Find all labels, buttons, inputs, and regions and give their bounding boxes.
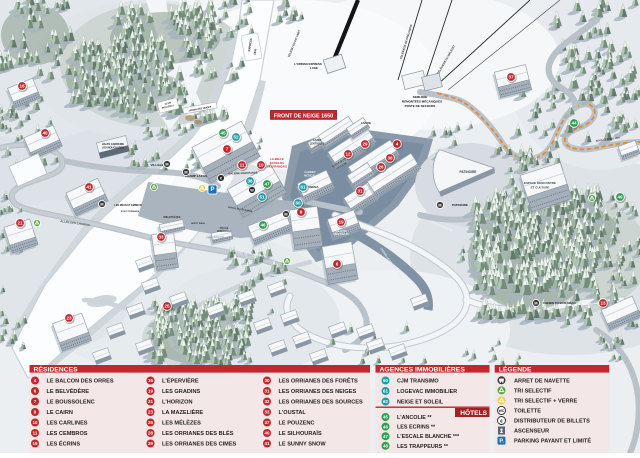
svg-text:AGENCES IMMOBILIÈRES: AGENCES IMMOBILIÈRES xyxy=(380,364,466,373)
svg-text:21: 21 xyxy=(17,221,23,226)
svg-text:7: 7 xyxy=(226,147,229,152)
svg-text:32: 32 xyxy=(265,399,270,404)
svg-text:LES ORRIANES DES BLÉS: LES ORRIANES DES BLÉS xyxy=(162,429,234,437)
svg-text:W: W xyxy=(250,189,254,193)
svg-text:29: 29 xyxy=(362,142,368,147)
svg-text:47: 47 xyxy=(383,434,388,439)
svg-text:L'ANCOLIE **: L'ANCOLIE ** xyxy=(397,415,432,421)
svg-text:19: 19 xyxy=(148,389,153,394)
svg-text:36: 36 xyxy=(247,179,253,184)
svg-text:PATINOIRE: PATINOIRE xyxy=(460,170,477,174)
svg-text:SEMLORE: SEMLORE xyxy=(413,95,428,99)
svg-text:62: 62 xyxy=(383,399,388,404)
svg-text:CENTRALES: CENTRALES xyxy=(310,142,325,145)
svg-text:SPECTACLES: SPECTACLES xyxy=(333,233,349,236)
svg-text:PONT ORRIANES: PONT ORRIANES xyxy=(121,210,140,213)
svg-text:LES MOUCHARDS: LES MOUCHARDS xyxy=(102,146,124,149)
svg-text:44: 44 xyxy=(571,121,577,126)
svg-text:LES ORRIANES DES FORÊTS: LES ORRIANES DES FORÊTS xyxy=(279,377,359,385)
svg-text:ASCENSEUR: ASCENSEUR xyxy=(514,429,549,435)
svg-text:LE BOUSSOLENC: LE BOUSSOLENC xyxy=(47,400,95,406)
svg-text:POLICE: POLICE xyxy=(220,228,229,230)
svg-text:DÉPÔT ÉARL: DÉPÔT ÉARL xyxy=(191,222,206,225)
svg-text:NEIGE ET SOLEIL: NEIGE ET SOLEIL xyxy=(397,400,444,406)
svg-text:30: 30 xyxy=(265,378,270,383)
svg-text:9: 9 xyxy=(300,210,303,215)
svg-text:POSTE DE SECOURS: POSTE DE SECOURS xyxy=(405,104,436,108)
svg-text:ESPACE RENCONTRE: ESPACE RENCONTRE xyxy=(524,181,556,185)
svg-text:23: 23 xyxy=(66,316,72,321)
svg-text:16: 16 xyxy=(19,84,25,89)
svg-text:L'ÉPERVIÈRE: L'ÉPERVIÈRE xyxy=(162,377,199,385)
svg-text:L'HORIZON: L'HORIZON xyxy=(162,400,193,406)
svg-text:€: € xyxy=(500,418,503,424)
svg-text:P.: P. xyxy=(499,439,504,445)
svg-text:LE SILHOURAÏS: LE SILHOURAÏS xyxy=(279,430,322,437)
svg-text:60: 60 xyxy=(295,201,301,206)
svg-text:LES MÉLÈZES: LES MÉLÈZES xyxy=(162,419,201,427)
svg-text:23: 23 xyxy=(148,410,153,415)
svg-text:SKI FRANÇAIS: SKI FRANÇAIS xyxy=(267,165,287,169)
svg-text:L'OUSTAL: L'OUSTAL xyxy=(279,410,307,416)
svg-text:16: 16 xyxy=(148,378,153,383)
svg-text:M: M xyxy=(100,203,103,207)
svg-text:29: 29 xyxy=(148,441,153,446)
svg-text:40: 40 xyxy=(42,131,48,136)
svg-text:37: 37 xyxy=(265,420,270,425)
svg-text:25: 25 xyxy=(148,420,153,425)
svg-text:49: 49 xyxy=(617,195,623,200)
svg-text:33: 33 xyxy=(265,410,270,415)
svg-text:LES ORRIANES DES SOURCES: LES ORRIANES DES SOURCES xyxy=(279,400,364,406)
svg-text:46: 46 xyxy=(260,223,266,228)
svg-text:LES CARLINES: LES CARLINES xyxy=(47,421,88,427)
svg-text:26: 26 xyxy=(378,165,384,170)
svg-text:BIBLIOTHÈQUE: BIBLIOTHÈQUE xyxy=(163,216,181,219)
svg-text:CJM TRANSIMO: CJM TRANSIMO xyxy=(397,379,439,385)
svg-text:45: 45 xyxy=(383,415,388,420)
svg-text:TRI SELECTIF + VERRE: TRI SELECTIF + VERRE xyxy=(514,398,578,404)
svg-text:37: 37 xyxy=(508,75,514,80)
svg-text:19: 19 xyxy=(338,220,344,225)
svg-text:LES CEMBROS: LES CEMBROS xyxy=(47,431,88,437)
svg-text:LE POUZENC: LE POUZENC xyxy=(279,421,315,427)
svg-text:13: 13 xyxy=(600,301,606,306)
svg-text:31: 31 xyxy=(357,189,363,194)
svg-text:LES GRADINS: LES GRADINS xyxy=(162,389,200,395)
svg-text:PATINOIRE: PATINOIRE xyxy=(452,203,468,207)
svg-text:LA MAZELIÈRE: LA MAZELIÈRE xyxy=(162,408,203,416)
svg-text:LES ORRIANES DES NEIGES: LES ORRIANES DES NEIGES xyxy=(279,389,357,395)
svg-text:ET CULTURE: ET CULTURE xyxy=(531,186,550,190)
svg-text:40: 40 xyxy=(265,431,270,436)
svg-text:M: M xyxy=(184,171,187,175)
svg-text:CINÉMA: CINÉMA xyxy=(307,184,318,189)
svg-text:11: 11 xyxy=(240,163,245,168)
svg-text:52: 52 xyxy=(233,135,239,140)
svg-text:33: 33 xyxy=(158,235,164,240)
svg-text:LOGEVAC IMMOBILIER: LOGEVAC IMMOBILIER xyxy=(397,389,457,395)
svg-text:38: 38 xyxy=(387,156,393,161)
svg-text:61: 61 xyxy=(383,389,388,394)
svg-text:REMONTÉES MÉCANIQUES: REMONTÉES MÉCANIQUES xyxy=(402,99,442,104)
svg-text:45: 45 xyxy=(220,131,226,136)
svg-text:LAVERIE: LAVERIE xyxy=(361,122,372,125)
svg-text:LES MÉAN ET EMBRUN: LES MÉAN ET EMBRUN xyxy=(114,204,142,207)
svg-text:6: 6 xyxy=(336,262,339,267)
svg-text:LES TRAPPEURS **: LES TRAPPEURS ** xyxy=(397,444,449,450)
svg-text:48: 48 xyxy=(383,444,388,449)
svg-text:FRONT DE NEIGE 1650: FRONT DE NEIGE 1650 xyxy=(274,113,333,119)
svg-text:LES ÉCRINS: LES ÉCRINS xyxy=(47,440,81,448)
svg-text:LES ORRIANES DES CIMES: LES ORRIANES DES CIMES xyxy=(162,442,237,448)
svg-text:31: 31 xyxy=(265,389,270,394)
svg-text:47: 47 xyxy=(264,182,270,187)
svg-text:RÉSIDENCES: RÉSIDENCES xyxy=(34,364,79,373)
svg-text:21: 21 xyxy=(148,399,153,404)
svg-text:M: M xyxy=(284,213,287,217)
svg-text:51: 51 xyxy=(259,195,265,200)
svg-text:12: 12 xyxy=(345,152,351,157)
svg-text:LUGE: LUGE xyxy=(310,66,318,70)
svg-text:28: 28 xyxy=(148,431,153,436)
svg-text:TOILETTE: TOILETTE xyxy=(514,408,541,414)
svg-text:LE CAIRN: LE CAIRN xyxy=(47,410,73,416)
svg-text:LES ECRINS **: LES ECRINS ** xyxy=(397,425,436,431)
svg-text:41: 41 xyxy=(265,441,270,446)
svg-text:4: 4 xyxy=(396,142,399,147)
svg-text:11: 11 xyxy=(33,431,38,436)
svg-text:60: 60 xyxy=(383,378,388,383)
svg-text:LE BALCON DES ORRES: LE BALCON DES ORRES xyxy=(47,379,114,385)
svg-text:DISTRIBUTEUR DE BILLETS: DISTRIBUTEUR DE BILLETS xyxy=(514,419,590,425)
svg-text:M: M xyxy=(534,302,537,306)
svg-text:25: 25 xyxy=(164,304,170,309)
svg-text:46: 46 xyxy=(383,424,388,429)
svg-text:M: M xyxy=(165,163,168,167)
svg-text:ARRET DE NAVETTE: ARRET DE NAVETTE xyxy=(514,378,570,384)
svg-text:CABINET: CABINET xyxy=(304,170,316,174)
svg-text:TRI SELECTIF: TRI SELECTIF xyxy=(514,388,552,394)
svg-text:SALLE DE: SALLE DE xyxy=(335,230,347,233)
svg-text:L'ESCALE BLANCHE ***: L'ESCALE BLANCHE *** xyxy=(397,434,460,440)
svg-text:LE SUNNY SNOW: LE SUNNY SNOW xyxy=(279,442,327,448)
svg-text:MUNICIPALE: MUNICIPALE xyxy=(217,230,232,233)
svg-text:15: 15 xyxy=(33,441,38,446)
svg-text:CHEMIN DU BOIS MÉAN: CHEMIN DU BOIS MÉAN xyxy=(543,300,575,305)
svg-text:M: M xyxy=(438,204,441,208)
svg-text:LE BELVÉDÈRE: LE BELVÉDÈRE xyxy=(47,387,90,395)
svg-text:WC: WC xyxy=(499,409,505,413)
svg-text:LÉGENDE: LÉGENDE xyxy=(499,364,532,373)
svg-text:10: 10 xyxy=(33,420,38,425)
svg-text:10: 10 xyxy=(258,163,264,168)
svg-text:P: P xyxy=(210,187,214,193)
svg-text:41: 41 xyxy=(86,185,92,190)
svg-text:PARKING PAYANT ET LIMITÉ: PARKING PAYANT ET LIMITÉ xyxy=(514,437,591,445)
svg-text:HÔTELS: HÔTELS xyxy=(460,408,487,417)
svg-text:61: 61 xyxy=(300,185,306,190)
